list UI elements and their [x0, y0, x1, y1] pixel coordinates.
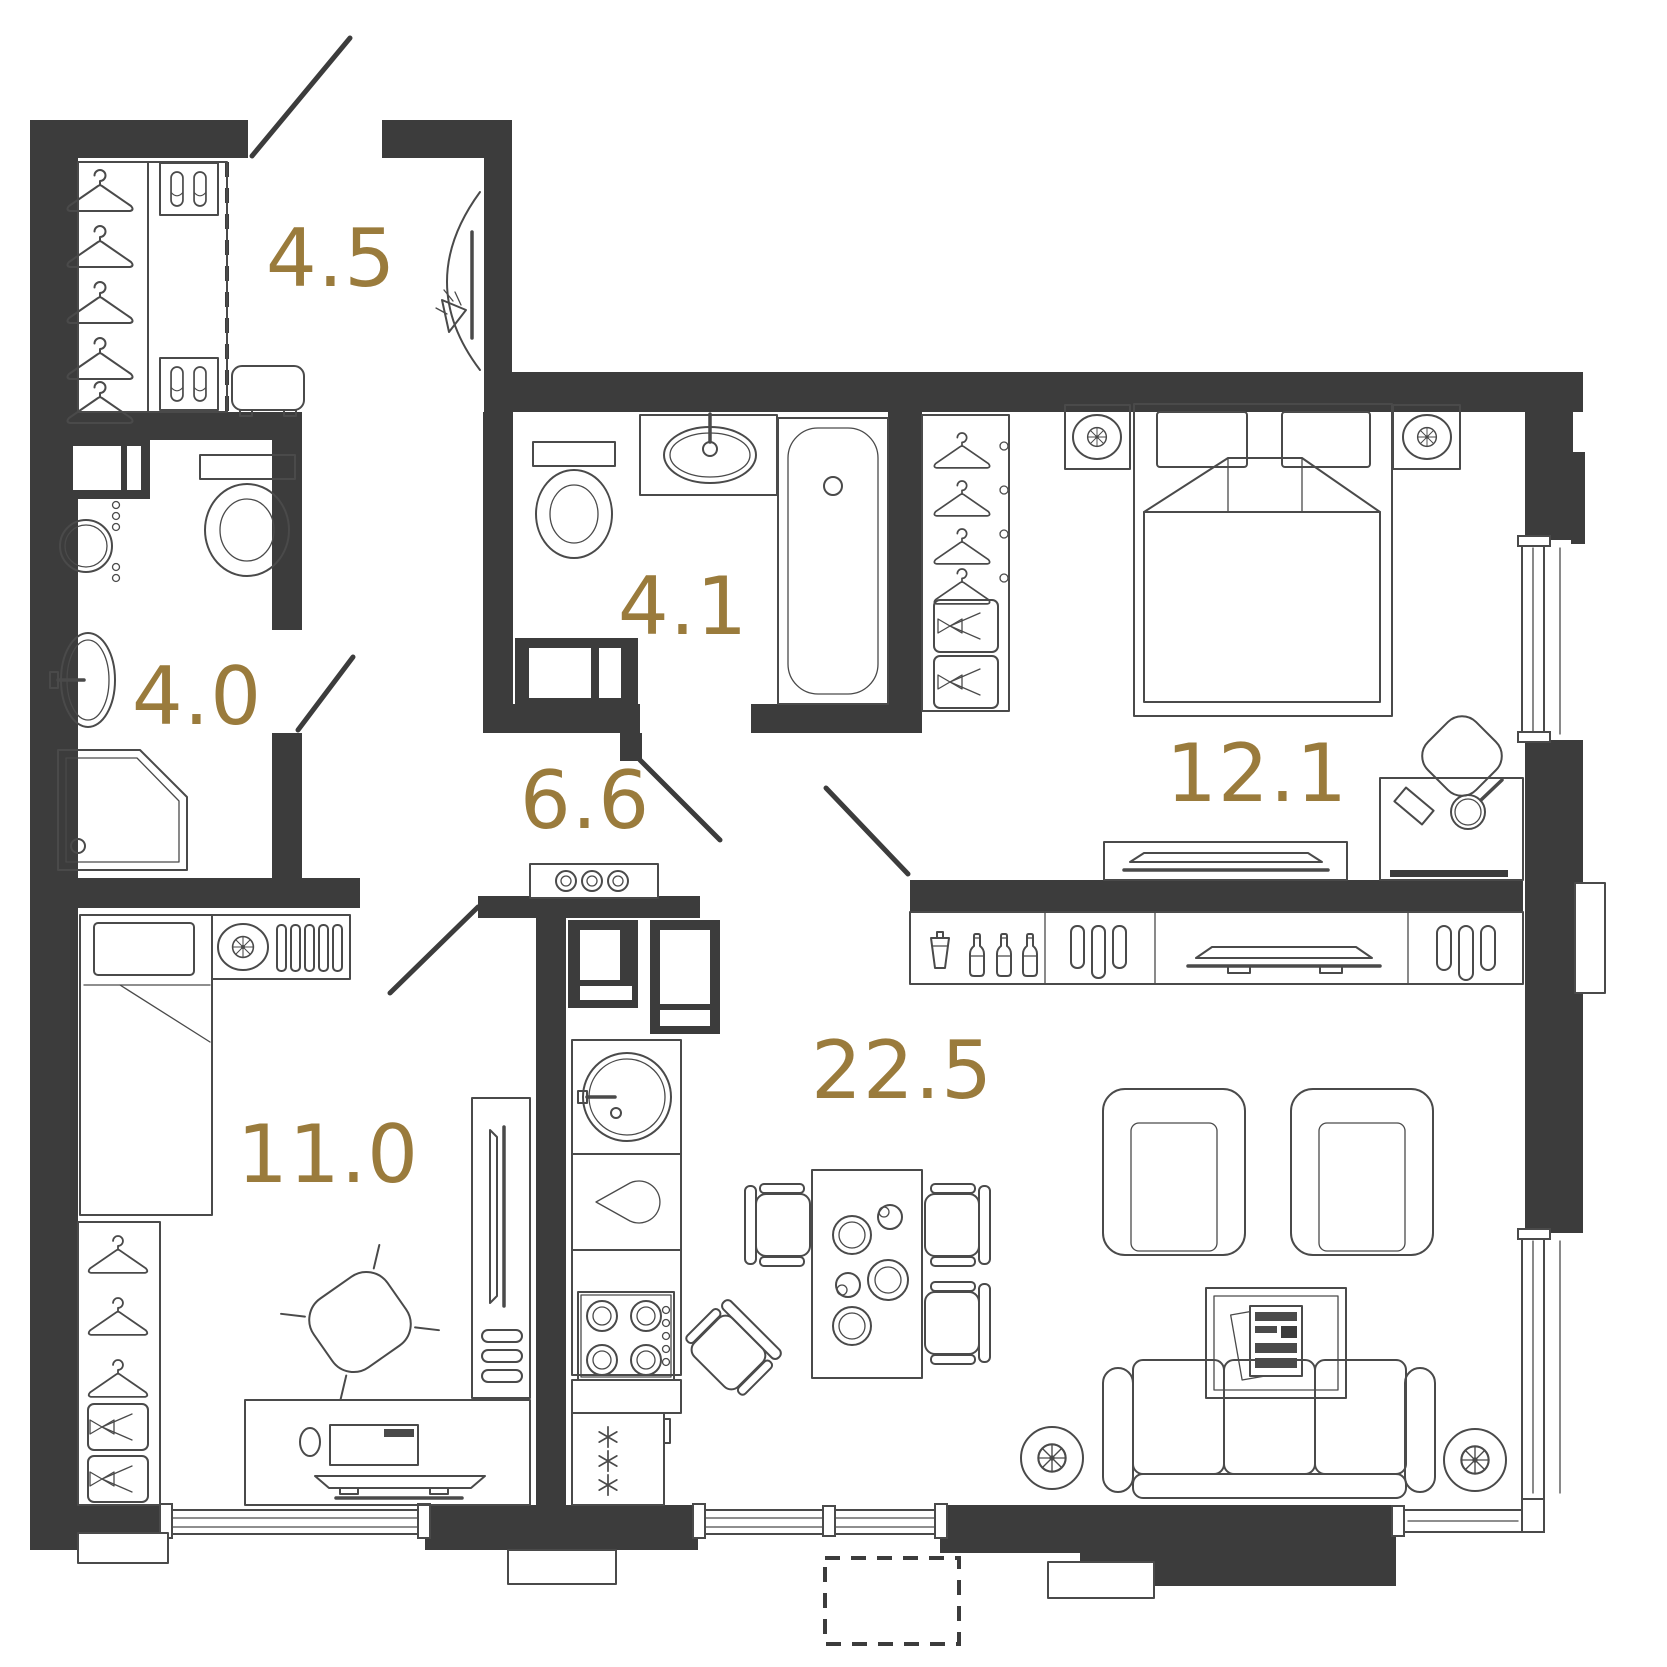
dining-chair-icon: [680, 1297, 784, 1401]
kitchen-sink-icon: [572, 1040, 681, 1154]
area-label-corridor: 6.6: [520, 754, 650, 847]
shoe-box-icon: [160, 358, 218, 410]
wall-segment: [272, 733, 302, 880]
window-room: [160, 1504, 430, 1538]
hanger-icon: [934, 529, 989, 564]
wall-segment: [30, 120, 248, 158]
room-bedroom-2: [78, 915, 530, 1505]
office-chair-icon: [281, 1245, 439, 1399]
hanger-icon: [934, 569, 989, 604]
hanger-icon: [934, 481, 989, 516]
wall-segment: [483, 412, 513, 704]
facade-ledge: [508, 1550, 616, 1584]
door-swing-entry: [252, 38, 350, 156]
desk-icon: [245, 1400, 530, 1505]
wall-segment: [888, 412, 922, 723]
area-label-bathroom2: 4.1: [618, 560, 748, 653]
coffee-table-icon: [1206, 1288, 1346, 1398]
nightstand-lamp-icon: [1065, 405, 1130, 469]
armchair-icon: [1291, 1089, 1433, 1255]
window-living-bottom: [693, 1504, 947, 1538]
dining-chair-icon: [925, 1282, 990, 1364]
door-swing-bedroom: [826, 788, 908, 874]
toilet-icon: [533, 442, 615, 558]
wall-segment: [478, 896, 700, 918]
mirror-sconce-icon: [436, 192, 480, 370]
floor-lamp-icon: [1021, 1427, 1083, 1489]
area-label-entry: 4.5: [266, 212, 396, 305]
cooker-hood-icon: [530, 864, 658, 898]
window-living-side: [1518, 1229, 1560, 1499]
double-bed-icon: [1134, 404, 1392, 716]
wall-segment: [483, 704, 640, 733]
wall-segment: [940, 1505, 1396, 1553]
floor-lamp-icon: [1444, 1429, 1506, 1491]
tv-unit-icon: [472, 1098, 530, 1398]
sofa-icon: [1103, 1360, 1435, 1498]
door-swing-bathroom-2: [640, 760, 720, 840]
wall-segment: [484, 120, 512, 412]
shoe-box-icon: [160, 163, 218, 215]
sink-icon: [640, 414, 777, 495]
fridge-icon: [568, 920, 638, 1008]
single-bed-icon: [80, 915, 212, 1215]
wall-segment: [536, 912, 566, 1505]
area-label-room: 11.0: [237, 1108, 419, 1201]
armchair-icon: [1103, 1089, 1245, 1255]
hanger-icon: [89, 1236, 148, 1273]
hanger-icon: [89, 1360, 148, 1397]
doors: [252, 38, 908, 993]
bench-icon: [232, 366, 304, 416]
wall-segment: [1571, 452, 1585, 544]
hob-icon: [572, 1250, 681, 1380]
facade-ledge: [1048, 1562, 1154, 1598]
tv-console-icon: [1104, 842, 1347, 880]
wardrobe-icon: [78, 1222, 160, 1505]
bathtub-icon: [778, 418, 888, 704]
wall-segment: [30, 120, 78, 1505]
counter-icon: [572, 1154, 681, 1250]
dining-table-icon: [812, 1170, 922, 1378]
hanger-icon: [89, 1298, 148, 1335]
bottle-icon: [1023, 934, 1037, 976]
nightstand-icon: [212, 915, 350, 979]
facade-ledge: [1575, 883, 1605, 993]
floor-plan: 4.5 4.0 4.1 6.6 12.1 11.0 22.5: [0, 0, 1667, 1667]
glasses-icon: [1071, 926, 1126, 978]
door-swing-bathroom: [298, 657, 353, 730]
glasses-icon: [1437, 926, 1495, 980]
floor-plan-canvas: 4.5 4.0 4.1 6.6 12.1 11.0 22.5: [0, 0, 1667, 1667]
bottle-icon: [997, 934, 1011, 976]
wall-segment: [910, 880, 1523, 912]
area-label-bathroom: 4.0: [132, 650, 262, 743]
dining-chair-icon: [745, 1184, 810, 1266]
shaker-icon: [931, 932, 949, 968]
room-kitchen-living: [680, 912, 1523, 1498]
area-label-bedroom: 12.1: [1166, 727, 1348, 820]
walls: [30, 120, 1585, 1586]
facade-ledge: [78, 1533, 168, 1563]
tv-icon: [1188, 947, 1380, 973]
dining-chair-icon: [925, 1184, 990, 1266]
balcony-outline: [825, 1558, 959, 1644]
wardrobe-icon: [67, 162, 227, 423]
nightstand-lamp-icon: [1393, 405, 1460, 469]
wardrobe-icon: [922, 415, 1009, 711]
window-living-corner: [1392, 1499, 1544, 1536]
freezer-icon: [572, 1413, 670, 1505]
bottle-icon: [970, 934, 984, 976]
hanger-icon: [934, 433, 989, 468]
door-swing-room: [390, 907, 478, 993]
wall-segment: [751, 704, 922, 733]
tall-cabinet-icon: [650, 920, 720, 1034]
wall-segment: [272, 438, 302, 630]
bar-sideboard-icon: [910, 912, 1523, 984]
wall-segment: [30, 878, 360, 908]
window-bedroom: [1518, 536, 1560, 742]
wall-segment: [1525, 412, 1573, 540]
counter-icon: [572, 1380, 681, 1413]
wall-segment: [425, 1505, 698, 1550]
chair-icon: [1414, 708, 1510, 804]
area-label-living: 22.5: [811, 1024, 993, 1117]
washing-machine-icon: [60, 437, 150, 499]
